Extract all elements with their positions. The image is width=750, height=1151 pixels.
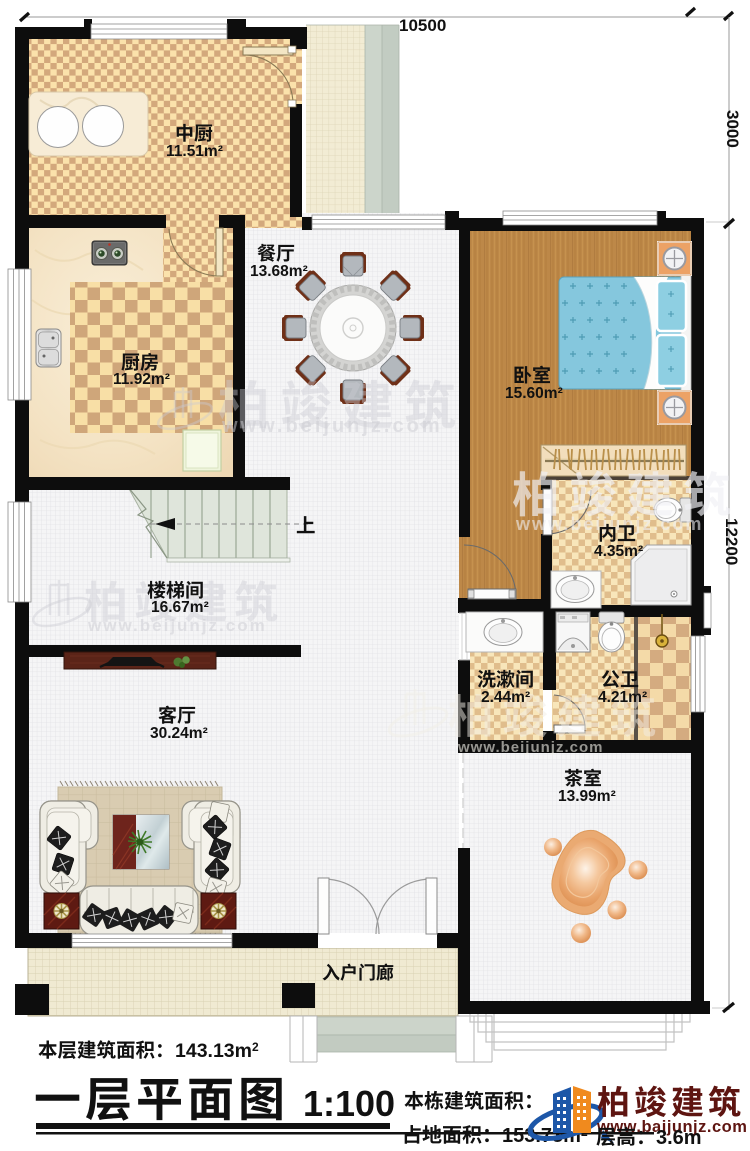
svg-text:2.44m²: 2.44m²	[481, 689, 530, 706]
svg-text:www.beijunjz.com: www.beijunjz.com	[221, 415, 443, 437]
svg-text:12200: 12200	[722, 518, 741, 565]
svg-text:4.35m²: 4.35m²	[594, 543, 643, 560]
svg-text:30.24m²: 30.24m²	[150, 725, 208, 742]
svg-text:10500: 10500	[399, 16, 446, 35]
svg-text:13.99m²: 13.99m²	[558, 788, 616, 805]
svg-text:www.beijunjz.com: www.beijunjz.com	[457, 739, 603, 756]
svg-text:15.60m²: 15.60m²	[505, 385, 563, 402]
svg-text:3000: 3000	[723, 110, 742, 148]
svg-text:www.beijunjz.com: www.beijunjz.com	[515, 514, 703, 534]
svg-text:13.68m²: 13.68m²	[250, 263, 308, 280]
svg-text:143.13m2: 143.13m2	[175, 1040, 259, 1062]
svg-text:4.21m²: 4.21m²	[598, 689, 647, 706]
svg-text:1:100: 1:100	[303, 1083, 395, 1124]
svg-text:16.67m²: 16.67m²	[151, 599, 209, 616]
svg-text:11.92m²: 11.92m²	[113, 371, 170, 388]
svg-text:www.beijunjz.com: www.beijunjz.com	[87, 616, 267, 635]
svg-text:11.51m²: 11.51m²	[166, 143, 223, 160]
svg-text:3.6m: 3.6m	[656, 1127, 702, 1149]
